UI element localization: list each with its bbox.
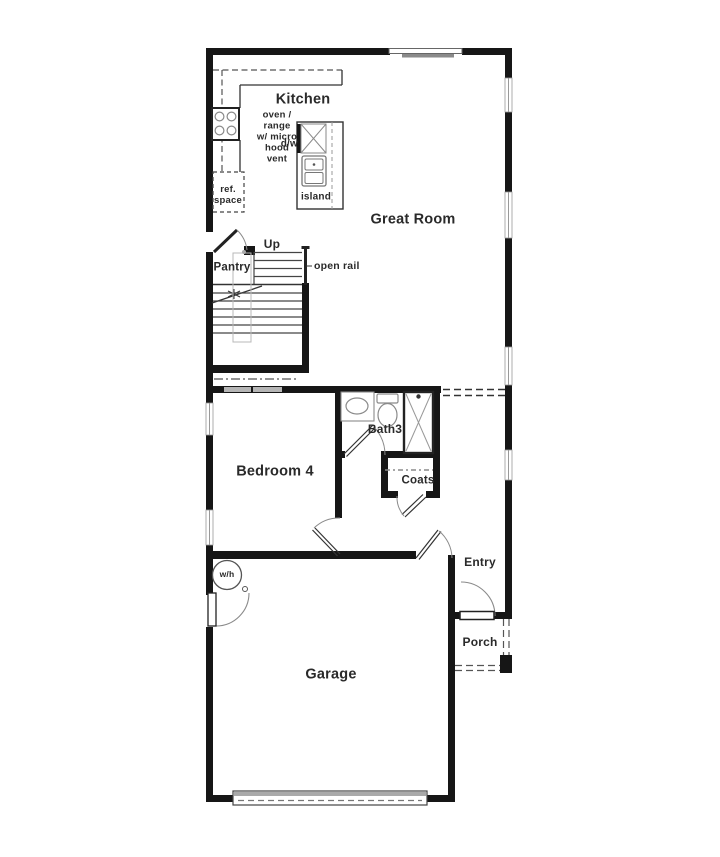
shower <box>404 392 433 453</box>
ceiling-break-dashes <box>443 390 505 396</box>
coats-door <box>397 495 426 518</box>
stairs <box>212 246 312 342</box>
stair-treads-upper <box>254 253 302 277</box>
window-right-4 <box>505 450 512 480</box>
wall-top-left <box>206 48 390 55</box>
open-rail-label: open rail <box>314 260 360 272</box>
entry-hall-door <box>416 530 452 560</box>
island-label: island <box>301 191 331 203</box>
dishwasher <box>301 124 326 153</box>
oven-range-note: oven / range w/ micro hood vent <box>257 110 297 165</box>
water-heater-label: w/h <box>220 570 235 580</box>
coats-label: Coats <box>402 474 435 487</box>
oven-range <box>212 108 239 140</box>
kitchen-label: Kitchen <box>276 92 331 109</box>
wall-top-right <box>462 48 512 55</box>
floor-plan: Kitchen Great Room oven / range w/ micro… <box>0 0 720 857</box>
wall-under-stairs <box>206 365 309 373</box>
dishwasher-label: d/w <box>281 138 298 150</box>
bedroom4-door <box>313 518 341 556</box>
floor-plan-drawing <box>0 0 720 857</box>
window-right-2 <box>505 192 512 238</box>
bath3-label: Bath3 <box>368 423 402 437</box>
cased-opening-2 <box>253 387 282 392</box>
front-door <box>460 582 495 620</box>
wall-pantry-stub <box>244 246 255 255</box>
exterior-walls <box>206 48 512 802</box>
ref-space-label: ref. space <box>214 184 242 206</box>
porch-label: Porch <box>462 636 497 650</box>
shower-head <box>416 394 420 398</box>
kitchen-sink <box>302 156 326 186</box>
porch-post <box>500 655 512 673</box>
bedroom4-label: Bedroom 4 <box>236 464 314 481</box>
entry-label: Entry <box>464 556 496 570</box>
pantry-label: Pantry <box>214 261 251 274</box>
wall-garage-right <box>448 555 455 802</box>
great-room-label: Great Room <box>371 212 456 229</box>
stair-treads-lower <box>213 293 302 333</box>
window-right-1 <box>505 78 512 112</box>
window-left-bedroom-1 <box>206 403 213 435</box>
garage-side-door <box>208 587 249 627</box>
sliding-door <box>389 49 462 58</box>
up-label: Up <box>264 238 280 252</box>
wall-stair-right <box>302 283 309 373</box>
bath-sink <box>341 392 374 421</box>
window-left-bedroom-2 <box>206 510 213 545</box>
wall-garage-top <box>206 551 416 559</box>
cased-opening-1 <box>224 387 251 392</box>
window-right-3 <box>505 347 512 385</box>
pantry-door <box>214 230 247 252</box>
garage-door <box>233 791 427 805</box>
garage-label: Garage <box>305 667 356 684</box>
